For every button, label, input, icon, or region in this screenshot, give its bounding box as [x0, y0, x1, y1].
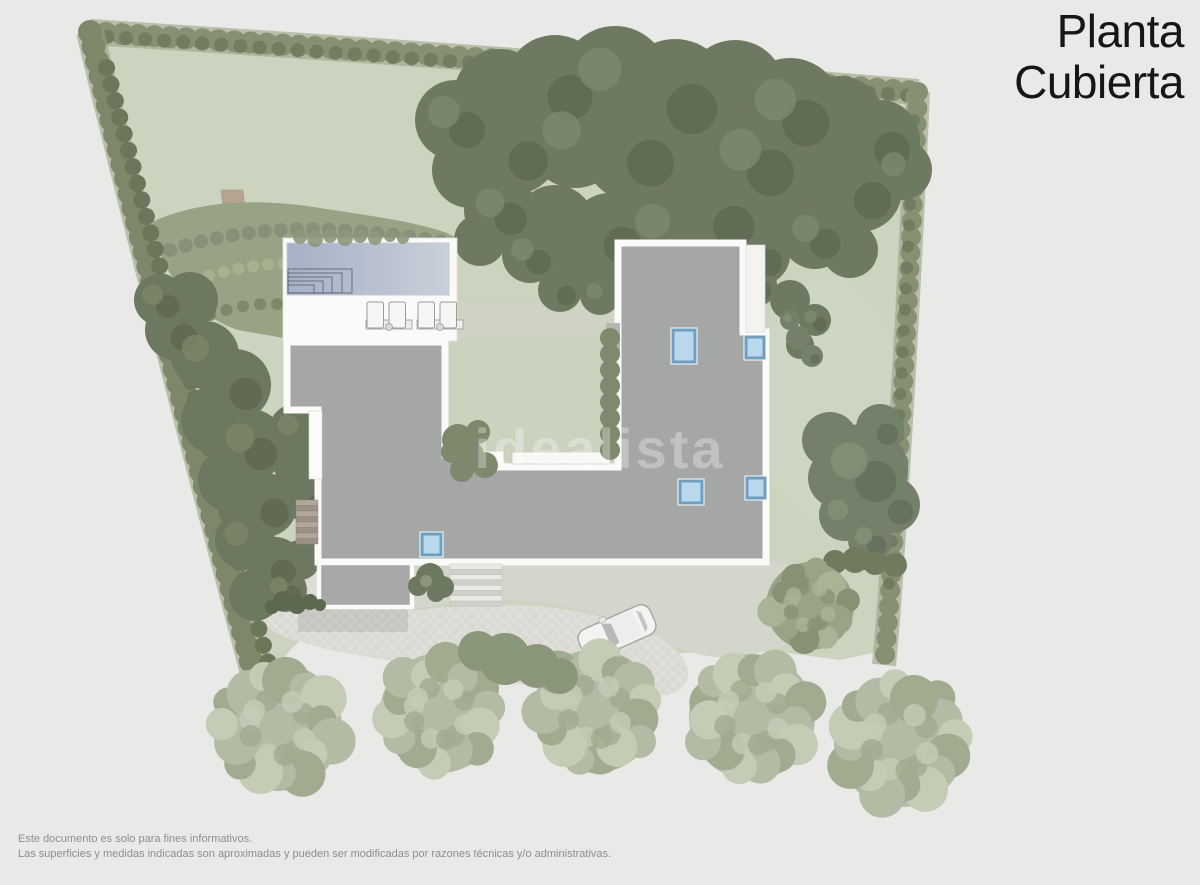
tree-canopy	[240, 725, 262, 747]
stair-step	[296, 506, 318, 512]
tree-canopy	[667, 84, 717, 134]
stair-step	[450, 564, 502, 569]
stair-step	[450, 596, 502, 601]
stair-step	[450, 601, 502, 606]
tree-canopy	[293, 728, 315, 750]
tree-canopy	[454, 714, 474, 734]
stair-step	[296, 500, 318, 506]
tree-canopy	[586, 283, 602, 299]
tree-canopy	[755, 79, 797, 121]
tree-canopy	[598, 676, 619, 697]
tree-canopy	[876, 423, 898, 445]
stair-step	[296, 539, 318, 545]
tree-canopy	[230, 378, 262, 410]
tree-canopy	[807, 618, 822, 633]
tree-canopy	[578, 48, 621, 91]
tree-canopy	[226, 423, 255, 452]
site-plan-page: idealista Planta Cubierta Este documento…	[0, 0, 1200, 885]
tree-canopy	[896, 759, 918, 781]
garage-apron	[298, 607, 408, 632]
tree-canopy	[508, 141, 548, 181]
stair-step	[450, 569, 502, 574]
tree-canopy	[542, 658, 578, 694]
tree-canopy	[748, 734, 769, 755]
stair-step	[296, 533, 318, 539]
plan-title: Planta Cubierta	[1014, 6, 1184, 108]
tree-canopy	[408, 688, 428, 708]
tree-canopy	[225, 522, 249, 546]
tree-canopy	[784, 605, 799, 620]
garage-roof	[319, 563, 412, 607]
tree-canopy	[476, 188, 505, 217]
tree-canopy	[293, 230, 307, 244]
tree-canopy	[281, 691, 303, 713]
stair-step	[296, 511, 318, 517]
tree-canopy	[882, 152, 906, 176]
tree-canopy	[767, 718, 788, 739]
tree-canopy	[591, 728, 612, 749]
tree-canopy	[718, 690, 739, 711]
tree-canopy	[427, 584, 445, 602]
skylight	[673, 330, 695, 362]
tree-canopy	[542, 111, 580, 149]
stair-step	[450, 580, 502, 585]
tree-canopy	[720, 129, 762, 171]
tree-canopy	[314, 599, 326, 611]
tree-canopy	[142, 284, 163, 305]
plan-title-line1: Planta	[1014, 6, 1184, 57]
disclaimer-line2: Las superficies y medidas indicadas son …	[18, 847, 611, 862]
skylight	[680, 481, 702, 503]
tree-canopy	[627, 140, 674, 187]
tree-canopy	[397, 232, 409, 244]
tree-canopy	[635, 204, 670, 239]
tree-canopy	[864, 713, 886, 735]
tree-canopy	[420, 575, 432, 587]
stair-step	[296, 522, 318, 528]
tree-canopy	[441, 441, 463, 463]
stair-step	[296, 528, 318, 534]
west-planter	[309, 411, 322, 479]
tree-canopy	[786, 587, 801, 602]
tree-canopy	[260, 499, 289, 528]
bottom-tree-row	[206, 638, 973, 817]
tree-canopy	[861, 739, 883, 761]
disclaimer: Este documento es solo para fines inform…	[18, 832, 611, 862]
tree-canopy	[557, 286, 577, 306]
tree-canopy	[443, 679, 463, 699]
tree-canopy	[458, 631, 498, 671]
tree-canopy	[854, 182, 892, 220]
plan-title-line2: Cubierta	[1014, 57, 1184, 108]
tree-canopy	[307, 231, 323, 247]
tree-canopy	[368, 231, 382, 245]
tree-canopy	[404, 711, 424, 731]
tree-canopy	[610, 712, 631, 733]
tree-canopy	[511, 238, 533, 260]
tree-canopy	[384, 230, 396, 242]
tree-canopy	[855, 527, 873, 545]
tree-canopy	[810, 354, 820, 364]
skylight	[746, 337, 764, 358]
hillside-stairs	[296, 500, 318, 544]
disclaimer-line1: Este documento es solo para fines inform…	[18, 832, 611, 847]
tree-canopy	[888, 499, 913, 524]
tree-canopy	[182, 335, 209, 362]
tree-canopy	[353, 229, 367, 243]
watermark-text: idealista	[474, 417, 725, 480]
tree-canopy	[783, 314, 791, 322]
tree-canopy	[206, 708, 238, 740]
entrance-stairs	[450, 564, 502, 606]
tree-canopy	[792, 215, 819, 242]
stair-step	[450, 591, 502, 596]
tree-canopy	[323, 229, 337, 243]
tree-canopy	[916, 742, 938, 764]
tree-canopy	[337, 230, 353, 246]
stair-step	[296, 517, 318, 523]
tree-canopy	[812, 581, 827, 596]
skylight	[747, 478, 765, 498]
tree-canopy	[558, 709, 579, 730]
tree-canopy	[821, 607, 836, 622]
site-plan-drawing: idealista	[0, 0, 1200, 885]
stair-step	[450, 585, 502, 590]
tree-canopy	[265, 600, 279, 614]
tree-canopy	[243, 700, 265, 722]
tree-canopy	[883, 553, 907, 577]
tree-canopy	[804, 310, 817, 323]
tree-canopy	[903, 704, 925, 726]
tree-canopy	[277, 414, 298, 435]
tree-canopy	[827, 499, 848, 520]
tree-canopy	[831, 442, 868, 479]
tree-canopy	[714, 715, 735, 736]
skylight	[422, 534, 441, 555]
tree-canopy	[436, 729, 456, 749]
tree-canopy	[274, 744, 296, 766]
stair-step	[450, 575, 502, 580]
tree-canopy	[755, 682, 776, 703]
east-terrace-strip	[746, 245, 765, 332]
tree-canopy	[428, 96, 460, 128]
